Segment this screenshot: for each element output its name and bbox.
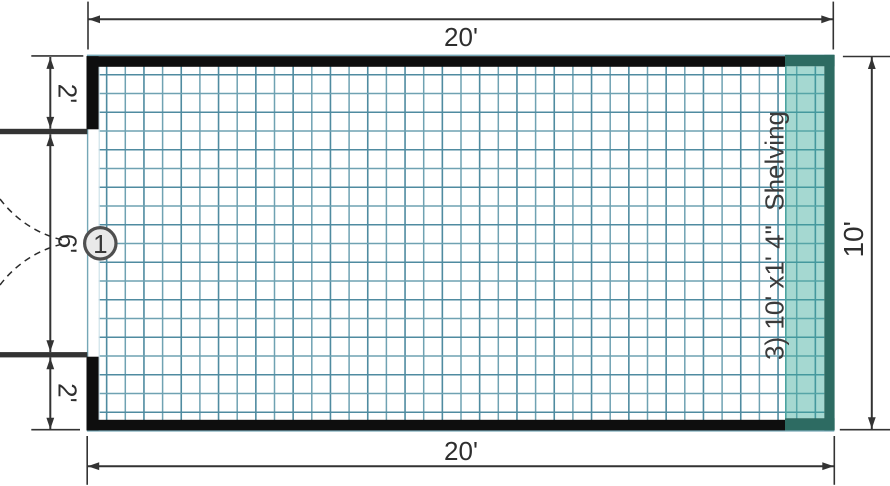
svg-text:20': 20' — [444, 436, 478, 466]
svg-text:20': 20' — [444, 22, 478, 52]
svg-text:6': 6' — [53, 234, 83, 253]
svg-text:2': 2' — [53, 383, 83, 402]
svg-text:3) 10' x1' 4" Shelving: 3) 10' x1' 4" Shelving — [760, 111, 790, 360]
svg-text:1: 1 — [93, 229, 107, 259]
svg-text:10': 10' — [838, 221, 869, 257]
svg-text:2': 2' — [53, 84, 83, 103]
